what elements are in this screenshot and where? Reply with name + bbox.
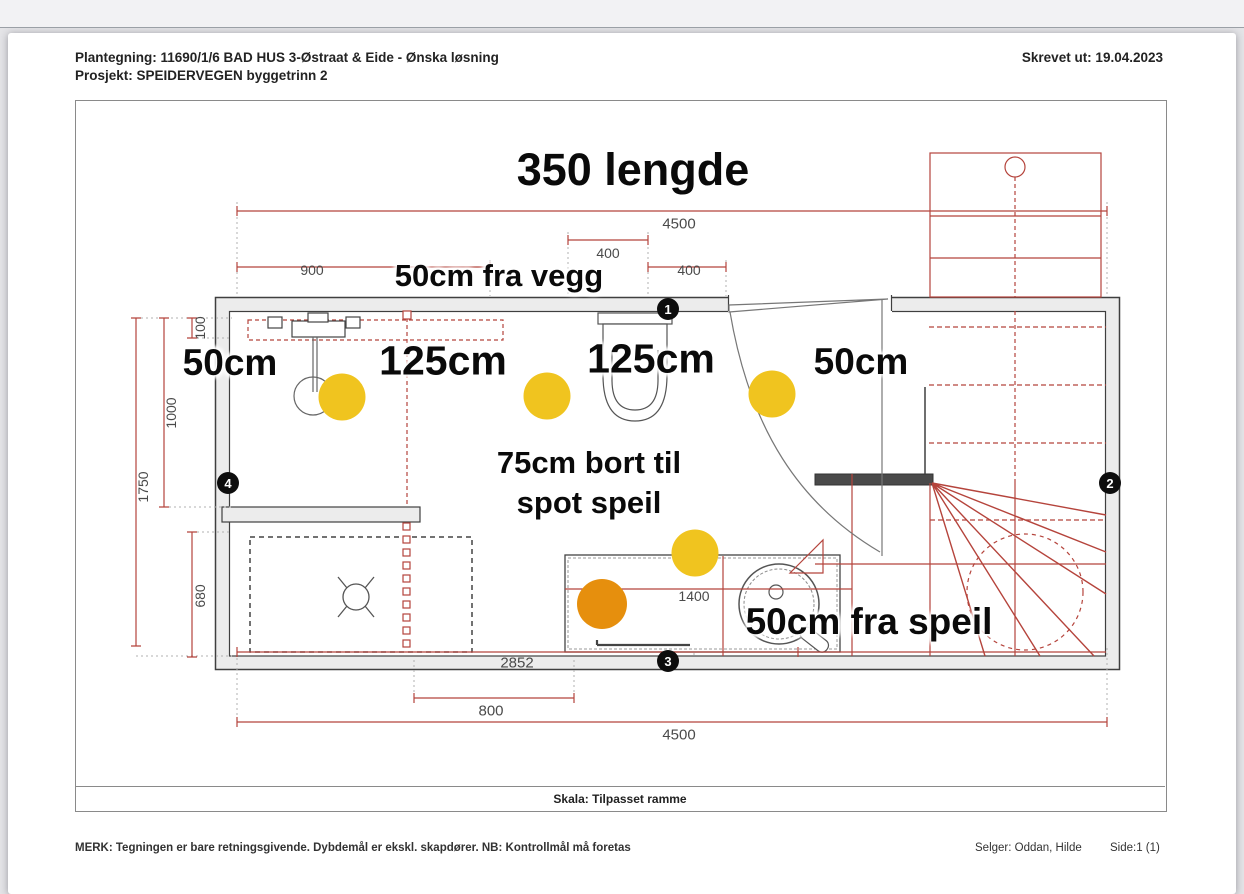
wall-marker-1: 1 xyxy=(657,298,679,320)
wall-marker-4: 4 xyxy=(217,472,239,494)
browser-top-strip xyxy=(0,0,1244,28)
dim-left-100: 100 xyxy=(192,316,208,339)
annotation-spot-1: 50cm xyxy=(183,342,278,384)
scale-label: Skala: Tilpasset ramme xyxy=(553,792,686,806)
footer-seller: Selger: Oddan, Hilde xyxy=(975,842,1082,854)
dim-left-680: 680 xyxy=(192,584,208,607)
scale-bar: Skala: Tilpasset ramme xyxy=(75,786,1165,811)
spotlight-dot-3 xyxy=(749,371,796,418)
dim-vanity-1400: 1400 xyxy=(678,588,709,604)
annotation-from-mirror: 50cm fra speil xyxy=(746,601,993,643)
annotation-length: 350 lengde xyxy=(517,144,750,196)
annotation-mirror-line2: spot speil xyxy=(497,483,681,523)
plan-title: Plantegning: 11690/1/6 BAD HUS 3-Østraat… xyxy=(75,50,499,65)
dim-top-total: 4500 xyxy=(662,216,695,233)
dim-bottom-2852: 2852 xyxy=(500,655,533,672)
spotlight-dot-4 xyxy=(672,530,719,577)
spotlight-dot-1 xyxy=(319,374,366,421)
printed-date: Skrevet ut: 19.04.2023 xyxy=(1022,50,1163,65)
dim-top-900: 900 xyxy=(300,262,323,278)
annotation-spot-3: 125cm xyxy=(587,336,715,383)
wall-marker-3: 3 xyxy=(657,650,679,672)
dim-left-1000: 1000 xyxy=(163,397,179,428)
dim-bottom-800: 800 xyxy=(478,703,503,720)
annotation-spot-2: 125cm xyxy=(379,338,507,385)
annotation-spot-4: 50cm xyxy=(814,341,909,383)
footer-note: MERK: Tegningen er bare retningsgivende.… xyxy=(75,842,631,854)
project-title: Prosjekt: SPEIDERVEGEN byggetrinn 2 xyxy=(75,68,328,83)
footer-page-number: Side:1 (1) xyxy=(1110,842,1160,854)
wall-marker-2: 2 xyxy=(1099,472,1121,494)
dim-top-400b: 400 xyxy=(677,262,700,278)
annotation-from-wall: 50cm fra vegg xyxy=(395,258,604,294)
annotation-mirror-line1: 75cm bort til xyxy=(497,443,681,483)
dim-bottom-total: 4500 xyxy=(662,727,695,744)
dim-left-1750: 1750 xyxy=(135,471,151,502)
screenshot-stage: Plantegning: 11690/1/6 BAD HUS 3-Østraat… xyxy=(0,0,1244,894)
spotlight-dot-orange xyxy=(577,579,627,629)
annotation-mirror-note: 75cm bort til spot speil xyxy=(497,443,681,523)
spotlight-dot-2 xyxy=(524,373,571,420)
